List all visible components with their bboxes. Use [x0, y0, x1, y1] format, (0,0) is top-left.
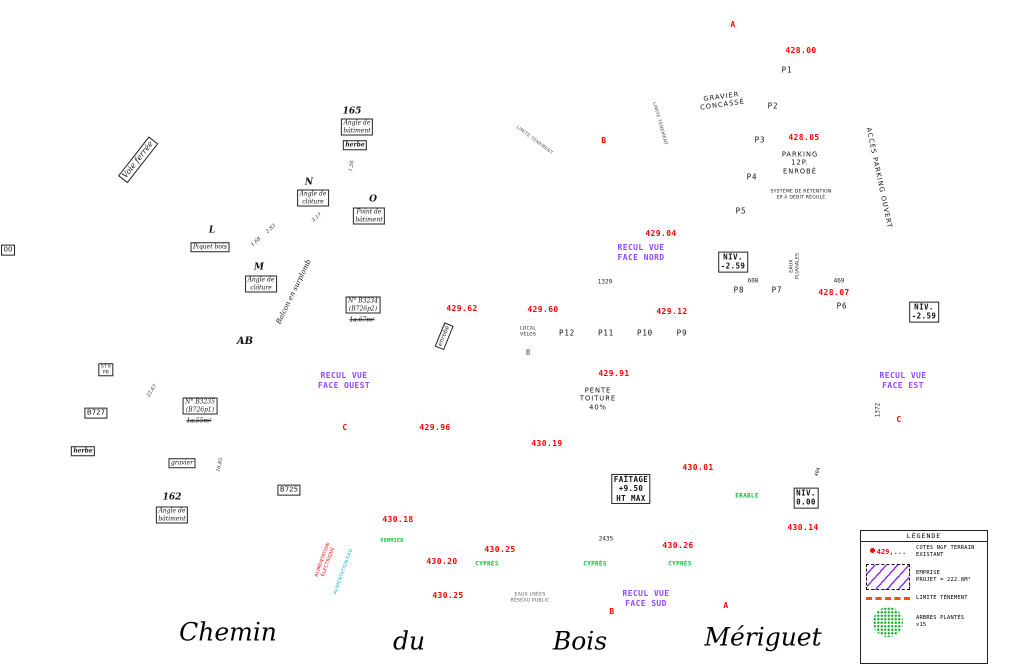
orange-dash-icon: [866, 597, 910, 600]
red-dot-icon: [870, 548, 875, 553]
emprise-hatch-icon: [866, 564, 910, 590]
legend-item-limite: LIMITE TÈNEMENT: [861, 592, 987, 604]
legend-cote-sample: 429,...: [877, 548, 907, 556]
legend-item-cotes: 429,... COTES NGF TERRAIN EXISTANT: [861, 542, 987, 561]
legend-title: LÉGENDE: [861, 531, 987, 542]
legend-item-arbres: ARBRES PLANTÉS x15: [861, 604, 987, 639]
site-plan: AABBCCP1P2P3P4P5P6P7P8P9P10P11P12GRAVIER…: [0, 0, 1024, 668]
tree-icon: [873, 607, 903, 637]
street-name-bois: Bois: [553, 627, 607, 656]
street-name-du: du: [393, 627, 425, 656]
legend: LÉGENDE 429,... COTES NGF TERRAIN EXISTA…: [860, 530, 988, 664]
street-name-meriguet: Mériguet: [704, 623, 821, 652]
street-name-chemin: Chemin: [179, 618, 277, 647]
legend-item-emprise: EMPRISE PROJET = 222.8M²: [861, 561, 987, 592]
